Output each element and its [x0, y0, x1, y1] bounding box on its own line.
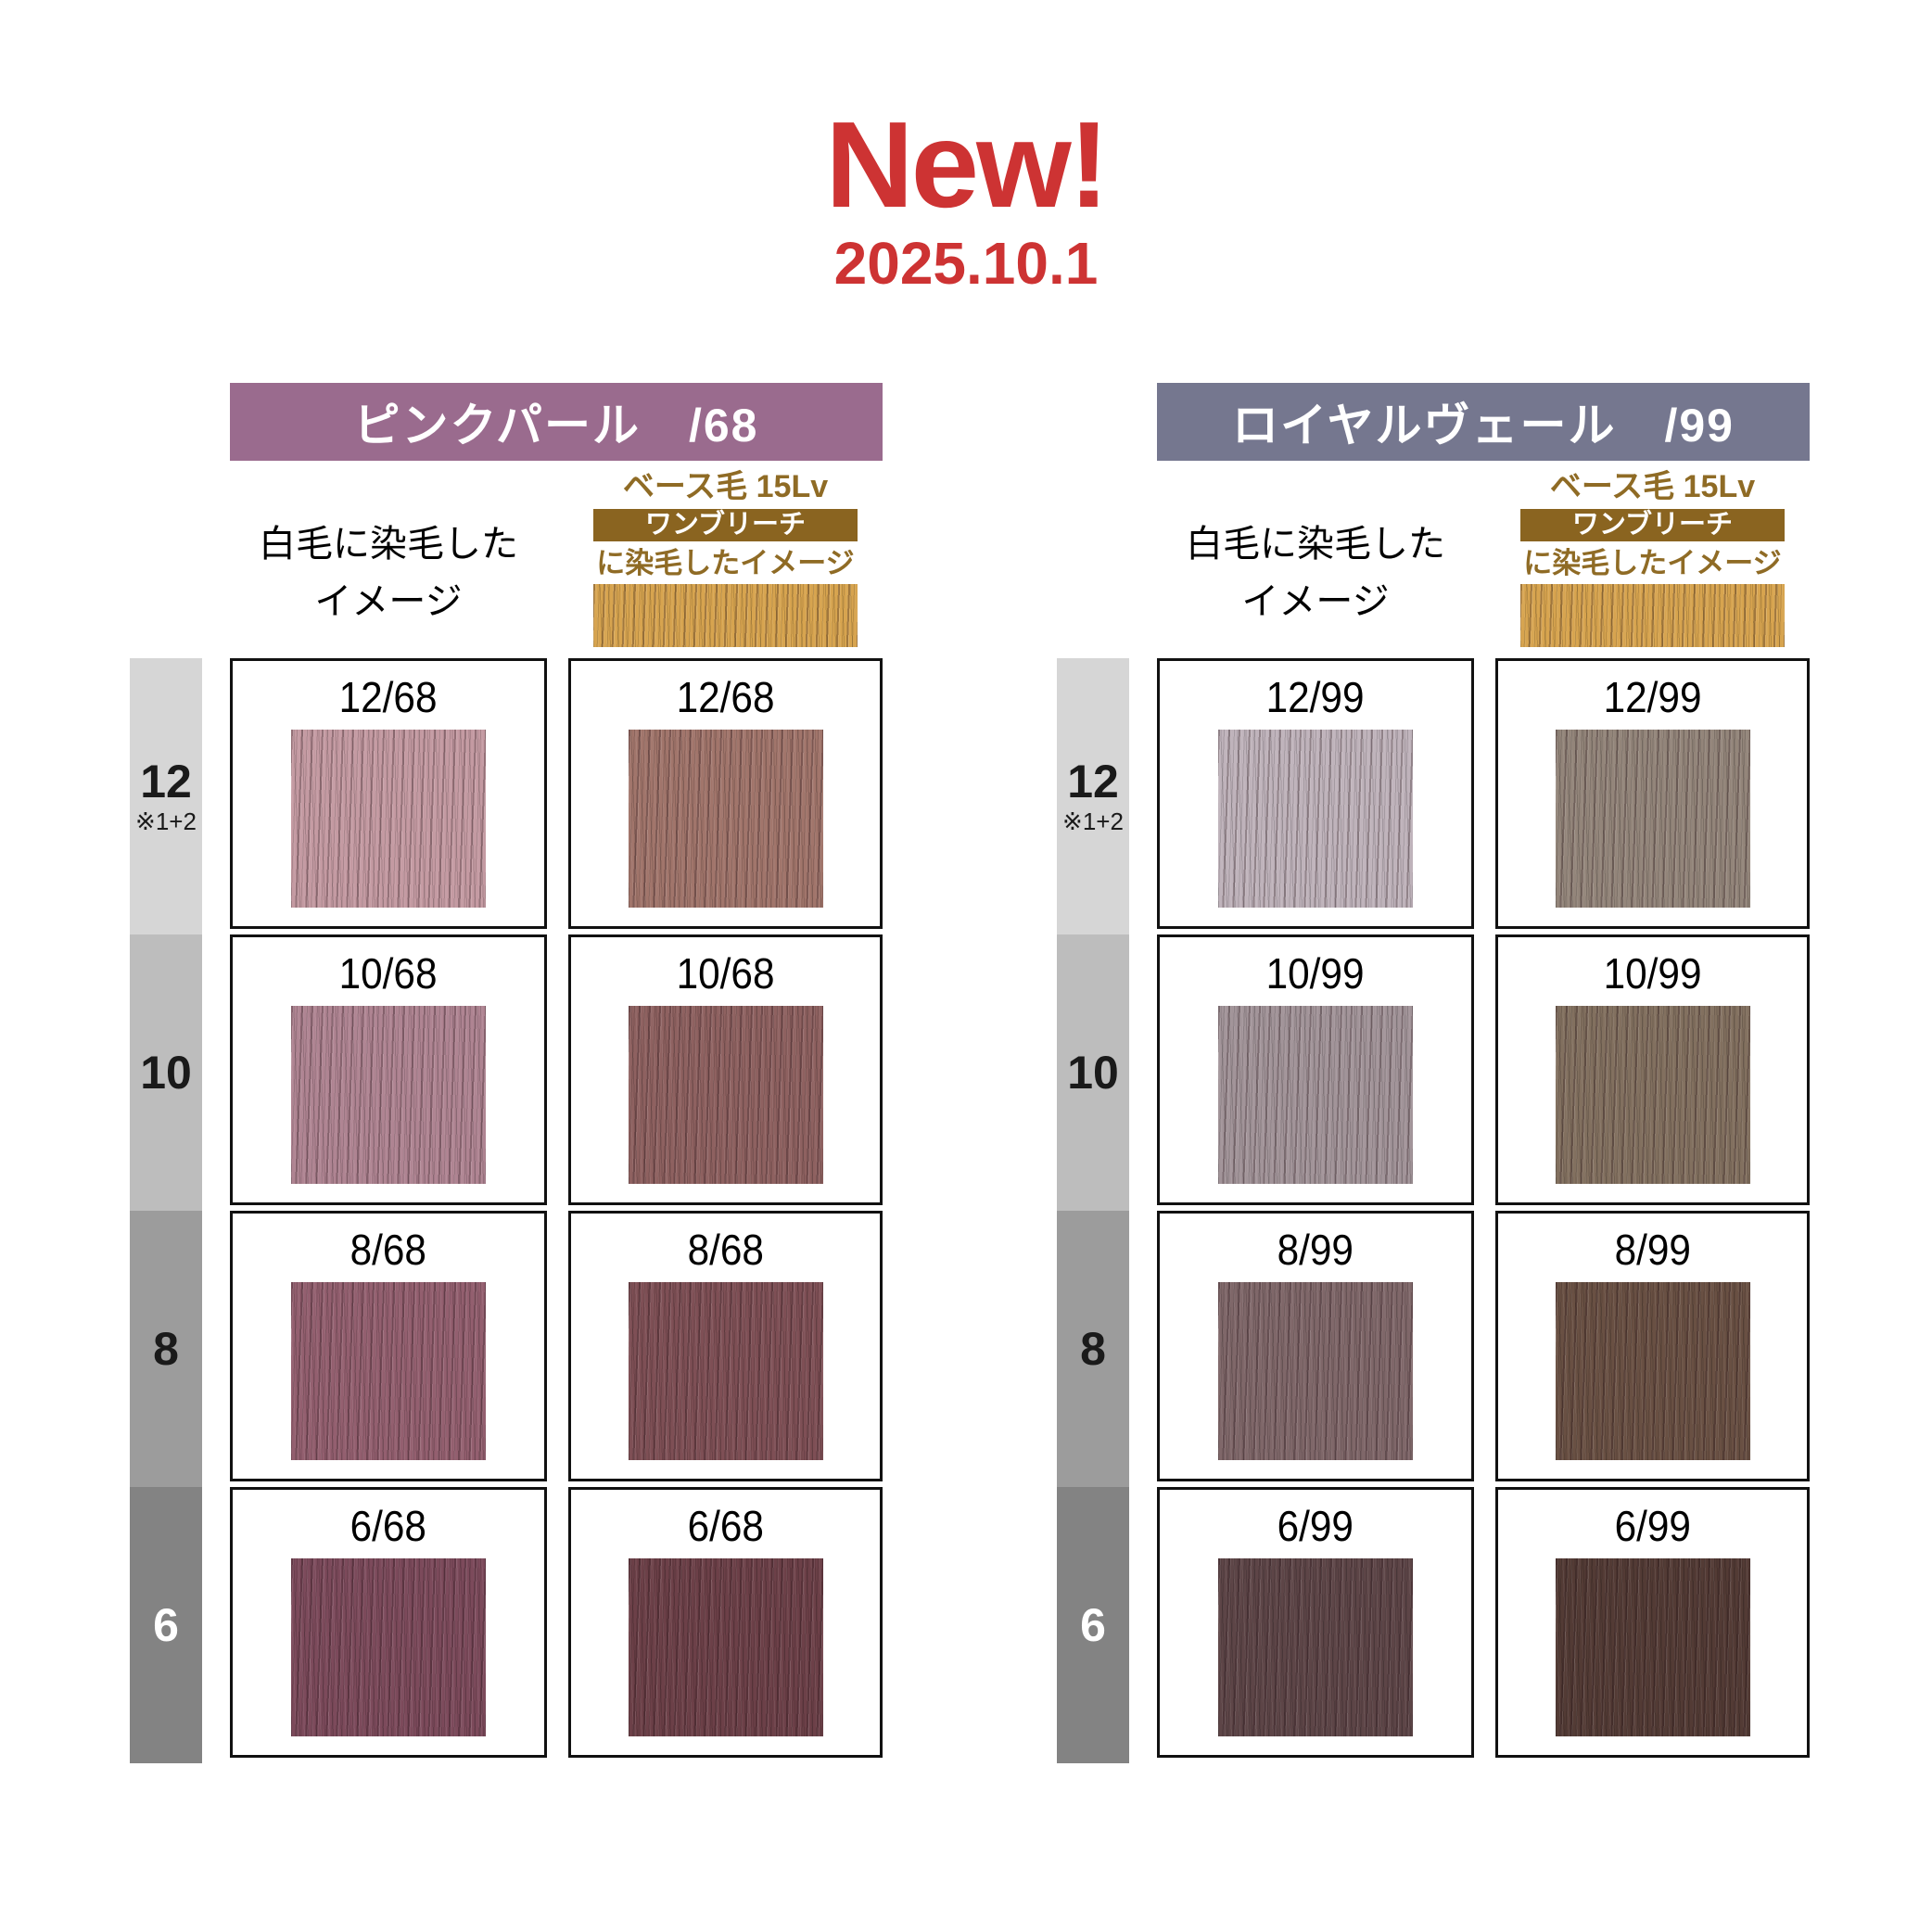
- hair-swatch: [1218, 1282, 1413, 1460]
- release-date: 2025.10.1: [0, 234, 1932, 293]
- swatch-cell-6-68-bleach: 6/68: [568, 1487, 883, 1758]
- swatch-cell-10-99-bleach: 10/99: [1495, 934, 1810, 1205]
- swatch-cell-8-99-white: 8/99: [1157, 1211, 1474, 1481]
- hair-swatch: [1556, 1282, 1750, 1460]
- hair-swatch: [291, 730, 486, 908]
- swatch-cell-6-99-bleach: 6/99: [1495, 1487, 1810, 1758]
- swatch-cell-8-68-bleach: 8/68: [568, 1211, 883, 1481]
- hair-swatch: [1218, 730, 1413, 908]
- swatch-label: 6/68: [350, 1505, 426, 1547]
- level-scale-left: 12 ※1+2 10 8 6: [130, 658, 202, 1763]
- swatch-label: 8/68: [687, 1228, 763, 1271]
- swatch-cell-10-68-white: 10/68: [230, 934, 547, 1205]
- base-hair-swatch: [1520, 584, 1785, 647]
- white-hair-note: 白毛に染毛した イメージ: [230, 515, 547, 630]
- swatch-label: 8/99: [1614, 1228, 1690, 1271]
- dyed-image-label: に染毛したイメージ: [568, 549, 883, 578]
- base-level-label: ベース毛 15Lv: [1495, 471, 1810, 502]
- hair-swatch: [629, 1558, 823, 1736]
- level-value: 12: [1067, 756, 1119, 807]
- level-value: 8: [1080, 1324, 1106, 1375]
- white-hair-note-line1: 白毛に染毛した: [230, 515, 547, 573]
- swatch-cell-8-68-white: 8/68: [230, 1211, 547, 1481]
- level-segment-8: 8: [1057, 1211, 1129, 1487]
- one-bleach-band: ワンブリーチ: [593, 509, 858, 541]
- swatch-label: 6/99: [1277, 1505, 1354, 1547]
- level-value: 8: [153, 1324, 179, 1375]
- one-bleach-band: ワンブリーチ: [1520, 509, 1785, 541]
- swatch-cell-12-68-white: 12/68: [230, 658, 547, 929]
- level-note: ※1+2: [135, 807, 197, 836]
- swatch-label: 10/99: [1604, 952, 1702, 995]
- level-value: 10: [140, 1048, 192, 1099]
- panel-title-pink-pearl: ピンクパール /68: [230, 383, 883, 461]
- swatch-label: 10/68: [677, 952, 775, 995]
- hair-swatch: [291, 1558, 486, 1736]
- swatch-cell-10-99-white: 10/99: [1157, 934, 1474, 1205]
- swatch-label: 12/68: [339, 676, 438, 718]
- level-value: 6: [153, 1600, 179, 1651]
- hair-swatch: [1218, 1006, 1413, 1184]
- hair-swatch: [1218, 1558, 1413, 1736]
- hair-swatch: [291, 1282, 486, 1460]
- swatch-cell-12-99-bleach: 12/99: [1495, 658, 1810, 929]
- level-value: 12: [140, 756, 192, 807]
- swatch-label: 10/68: [339, 952, 438, 995]
- swatch-cell-8-99-bleach: 8/99: [1495, 1211, 1810, 1481]
- hair-swatch: [1556, 1006, 1750, 1184]
- level-note: ※1+2: [1062, 807, 1124, 836]
- hair-swatch: [1556, 1558, 1750, 1736]
- level-value: 6: [1080, 1600, 1106, 1651]
- swatch-cell-10-68-bleach: 10/68: [568, 934, 883, 1205]
- level-segment-12: 12 ※1+2: [1057, 658, 1129, 934]
- swatch-cell-12-68-bleach: 12/68: [568, 658, 883, 929]
- white-hair-note-line2: イメージ: [1157, 573, 1474, 630]
- white-hair-note-line1: 白毛に染毛した: [1157, 515, 1474, 573]
- hair-swatch: [1556, 730, 1750, 908]
- hair-swatch: [629, 1006, 823, 1184]
- panel-title-royal-veil: ロイヤルヴェール /99: [1157, 383, 1810, 461]
- dyed-image-label: に染毛したイメージ: [1495, 549, 1810, 578]
- hair-swatch: [291, 1006, 486, 1184]
- level-segment-8: 8: [130, 1211, 202, 1487]
- swatch-label: 8/99: [1277, 1228, 1354, 1271]
- swatch-label: 12/99: [1266, 676, 1365, 718]
- swatch-cell-6-99-white: 6/99: [1157, 1487, 1474, 1758]
- level-segment-10: 10: [130, 934, 202, 1211]
- base-level-label: ベース毛 15Lv: [568, 471, 883, 502]
- swatch-cell-12-99-white: 12/99: [1157, 658, 1474, 929]
- hair-swatch: [629, 1282, 823, 1460]
- color-chart-page: New! 2025.10.1 ピンクパール /68 白毛に染毛した イメージ ベ…: [0, 0, 1932, 1932]
- swatch-label: 6/99: [1614, 1505, 1690, 1547]
- swatch-label: 12/68: [677, 676, 775, 718]
- base-hair-swatch: [593, 584, 858, 647]
- level-segment-6: 6: [130, 1487, 202, 1763]
- swatch-label: 6/68: [687, 1505, 763, 1547]
- swatch-cell-6-68-white: 6/68: [230, 1487, 547, 1758]
- white-hair-note: 白毛に染毛した イメージ: [1157, 515, 1474, 630]
- swatch-label: 8/68: [350, 1228, 426, 1271]
- level-segment-6: 6: [1057, 1487, 1129, 1763]
- white-hair-note-line2: イメージ: [230, 573, 547, 630]
- swatch-label: 10/99: [1266, 952, 1365, 995]
- swatch-label: 12/99: [1604, 676, 1702, 718]
- level-value: 10: [1067, 1048, 1119, 1099]
- hair-swatch: [629, 730, 823, 908]
- new-badge: New!: [0, 104, 1932, 226]
- level-segment-10: 10: [1057, 934, 1129, 1211]
- level-segment-12: 12 ※1+2: [130, 658, 202, 934]
- level-scale-right: 12 ※1+2 10 8 6: [1057, 658, 1129, 1763]
